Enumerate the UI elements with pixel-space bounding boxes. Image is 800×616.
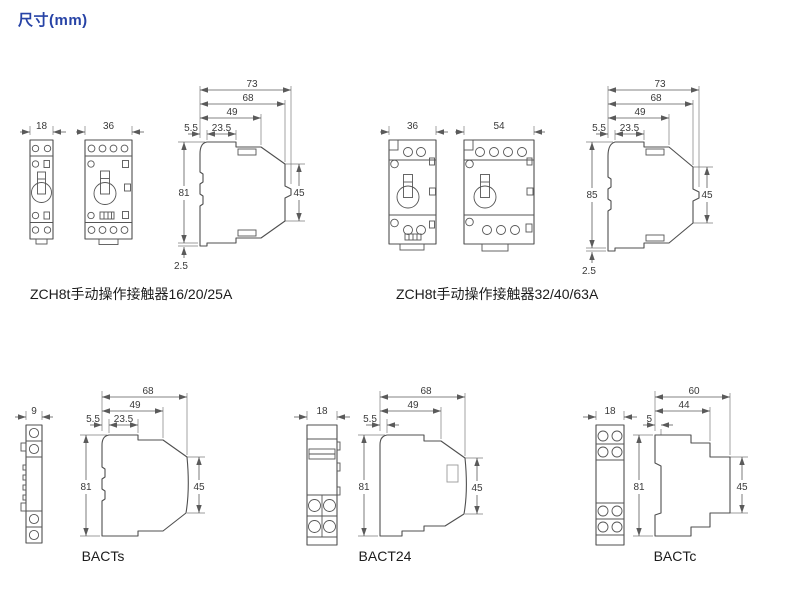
dim-49-label: 49 [634, 107, 646, 118]
dim-2-5-label: 2.5 [174, 261, 188, 272]
bactc-side-view: 60 44 5 81 45 [625, 383, 765, 548]
dim-5-5-label: 5.5 [86, 414, 100, 425]
zch8t-large-front-view-36: 36 [378, 118, 450, 256]
dim-5-5-label: 5.5 [363, 414, 377, 425]
dim-44-label: 44 [678, 400, 690, 411]
dim-73-label: 73 [654, 79, 666, 90]
svg-defs [0, 0, 1, 1]
dim-45-label: 45 [193, 482, 205, 493]
caption-bactc: BACTc [630, 548, 720, 564]
dim-49-label: 49 [226, 107, 238, 118]
dim-49-label: 49 [407, 400, 419, 411]
dim-68-label: 68 [142, 386, 154, 397]
dim-width-label: 36 [407, 121, 419, 132]
zch8t-small-front-view-18: 18 [20, 118, 66, 250]
zch8t-small-front-view-36: 36 [74, 118, 146, 250]
caption-bacts: BACTs [58, 548, 148, 564]
dim-45-label: 45 [471, 483, 483, 494]
dim-width-label: 36 [103, 121, 115, 132]
dim-68-label: 68 [420, 386, 432, 397]
dim-23-5-label: 23.5 [620, 123, 640, 134]
zch8t-small-side-view: 73 68 49 5.5 23.5 81 45 2.5 [158, 76, 324, 276]
bact24-front-view: 18 [292, 403, 352, 551]
bact24-side-view: 68 49 5.5 81 45 [350, 383, 500, 548]
dim-68-label: 68 [242, 93, 254, 104]
zch8t-large-side-view: 73 68 49 5.5 23.5 85 45 2.5 [566, 76, 732, 281]
dim-23-5-label: 23.5 [114, 414, 134, 425]
dim-width-label: 9 [31, 406, 37, 417]
caption-zch8t-small: ZCH8t手动操作接触器16/20/25A [30, 284, 232, 304]
dim-5-5-label: 5.5 [592, 123, 606, 134]
dim-width-label: 18 [604, 406, 616, 417]
bacts-front-view: 9 [12, 403, 54, 548]
dim-45-label: 45 [701, 190, 713, 201]
dim-5-label: 5 [646, 414, 652, 425]
dim-73-label: 73 [246, 79, 258, 90]
dim-5-5-label: 5.5 [184, 123, 198, 134]
dimension-diagram-page: 尺寸(mm) 18 36 [0, 0, 800, 616]
dim-width-label: 18 [316, 406, 328, 417]
dim-23-5-label: 23.5 [212, 123, 232, 134]
dim-2-5-label: 2.5 [582, 266, 596, 277]
dim-45-label: 45 [736, 482, 748, 493]
dim-45-label: 45 [293, 188, 305, 199]
page-title: 尺寸(mm) [18, 9, 88, 30]
zch8t-large-front-view-54: 54 [452, 118, 548, 256]
dim-60-label: 60 [688, 386, 700, 397]
dim-width-label: 54 [493, 121, 505, 132]
dim-49-label: 49 [129, 400, 141, 411]
dim-81-label: 81 [358, 482, 370, 493]
caption-zch8t-large: ZCH8t手动操作接触器32/40/63A [396, 284, 598, 304]
dim-81-label: 81 [633, 482, 645, 493]
bacts-side-view: 68 49 5.5 23.5 81 45 [72, 383, 222, 548]
dim-68-label: 68 [650, 93, 662, 104]
dim-width-label: 18 [36, 121, 48, 132]
dim-81-label: 81 [80, 482, 92, 493]
dim-85-label: 85 [586, 190, 598, 201]
dim-81-label: 81 [178, 188, 190, 199]
caption-bact24: BACT24 [340, 548, 430, 564]
